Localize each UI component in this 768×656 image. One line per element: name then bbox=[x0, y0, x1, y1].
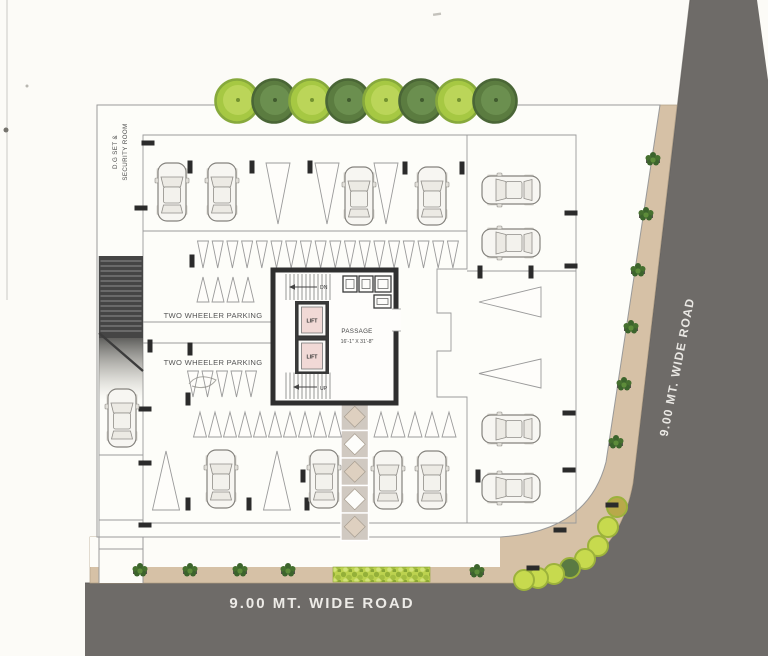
column-marker bbox=[565, 264, 578, 269]
car-icon bbox=[371, 451, 405, 509]
corner-bush-icon bbox=[514, 570, 534, 590]
column-marker bbox=[139, 407, 152, 412]
column-marker bbox=[563, 468, 576, 473]
stair-down-label: DN bbox=[320, 285, 328, 291]
two-wheeler-parking-label-1: TWO WHEELER PARKING bbox=[164, 311, 263, 320]
column-marker bbox=[188, 161, 193, 174]
car-icon bbox=[205, 163, 239, 221]
column-marker bbox=[148, 340, 153, 353]
corner-bush-icon bbox=[598, 517, 618, 537]
column-marker bbox=[476, 470, 481, 483]
meter-box bbox=[375, 276, 391, 292]
column-marker bbox=[186, 393, 191, 406]
boundary-post bbox=[606, 503, 619, 508]
lift-lower-label: LIFT bbox=[307, 355, 319, 361]
road-label-bottom: 9.00 MT. WIDE ROAD bbox=[229, 595, 414, 612]
column-marker bbox=[301, 470, 306, 483]
stair-up-label: UP bbox=[320, 386, 328, 392]
meter-box bbox=[359, 276, 373, 292]
car-icon bbox=[482, 173, 540, 207]
meter-box bbox=[343, 276, 357, 292]
parking-floor-plan: D.G SET & SECURITY ROOM TWO WHEELER PARK… bbox=[0, 0, 768, 656]
boundary-post bbox=[554, 528, 567, 533]
column-marker bbox=[565, 211, 578, 216]
meter-box bbox=[374, 295, 391, 308]
passage-label: PASSAGE bbox=[341, 328, 372, 335]
car-icon bbox=[482, 412, 540, 446]
car-icon bbox=[204, 450, 238, 508]
column-marker bbox=[250, 161, 255, 174]
dg-security-room-label-line2: SECURITY ROOM bbox=[122, 123, 129, 180]
column-marker bbox=[563, 411, 576, 416]
column-marker bbox=[139, 461, 152, 466]
passage-dimension-label: 16'-1" X 31'-8" bbox=[341, 339, 374, 345]
column-marker bbox=[403, 162, 408, 175]
column-marker bbox=[186, 498, 191, 511]
boundary-post bbox=[527, 566, 540, 571]
lift-upper-label: LIFT bbox=[307, 319, 319, 325]
dg-security-room-label-line1: D.G SET & bbox=[112, 134, 119, 169]
column-marker bbox=[529, 266, 534, 279]
scan-speck bbox=[4, 128, 9, 133]
column-marker bbox=[190, 255, 195, 268]
hedge-strip bbox=[333, 567, 430, 582]
car-icon bbox=[342, 167, 376, 225]
tree-icon bbox=[474, 80, 517, 123]
lift-stair-core bbox=[273, 270, 401, 403]
two-wheeler-parking-label-2: TWO WHEELER PARKING bbox=[164, 358, 263, 367]
car-icon bbox=[415, 451, 449, 509]
column-marker bbox=[460, 162, 465, 175]
car-icon bbox=[482, 226, 540, 260]
column-marker bbox=[247, 498, 252, 511]
car-icon bbox=[482, 471, 540, 505]
column-marker bbox=[135, 206, 148, 211]
column-marker bbox=[308, 161, 313, 174]
column-marker bbox=[139, 523, 152, 528]
car-icon bbox=[155, 163, 189, 221]
site-plan-scan: D.G SET & SECURITY ROOM TWO WHEELER PARK… bbox=[0, 0, 768, 656]
car-icon bbox=[415, 167, 449, 225]
setback-strip bbox=[90, 537, 500, 567]
scan-speck bbox=[26, 85, 29, 88]
column-marker bbox=[188, 343, 193, 356]
core-door-opening bbox=[392, 309, 401, 331]
scan-speck bbox=[433, 12, 441, 15]
column-marker bbox=[478, 266, 483, 279]
car-icon bbox=[307, 450, 341, 508]
car-icon bbox=[105, 389, 139, 447]
column-marker bbox=[142, 141, 155, 146]
